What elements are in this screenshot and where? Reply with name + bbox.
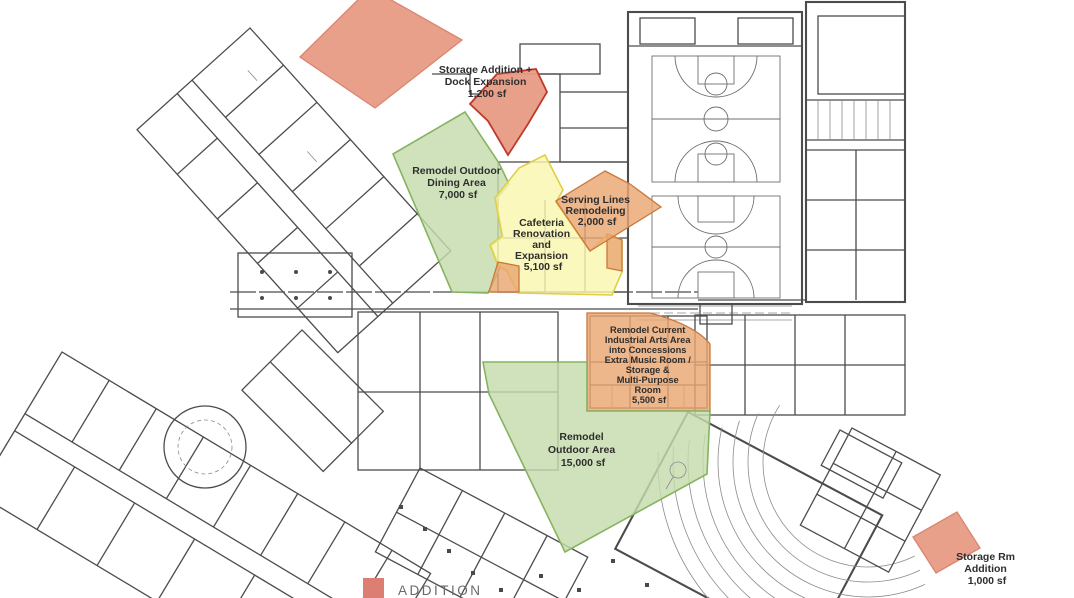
label-storage-rm-addition: Storage Rm Addition 1,000 sf: [956, 551, 1018, 587]
floor-plan-drawing: Storage Addition + Dock Expansion 1,200 …: [0, 0, 1074, 598]
basketball-court-2: [652, 196, 780, 298]
commons-entry: [238, 253, 352, 317]
media-center-round-room: [164, 406, 246, 488]
east-wing: [806, 2, 905, 302]
gymnasium: [628, 12, 802, 324]
legend-addition-label: ADDITION: [398, 583, 483, 598]
basketball-court-1: [652, 56, 780, 182]
overlay-addition-northwest: [300, 0, 462, 108]
main-corridor: [230, 292, 806, 309]
southwest-wing: [0, 352, 431, 598]
legend: ADDITION: [363, 578, 483, 598]
floor-plan-page: Storage Addition + Dock Expansion 1,200 …: [0, 0, 1074, 598]
legend-addition-swatch: [363, 578, 384, 598]
stage-support-rooms: [800, 428, 940, 572]
overlay-outdoor-dining: [393, 112, 509, 293]
